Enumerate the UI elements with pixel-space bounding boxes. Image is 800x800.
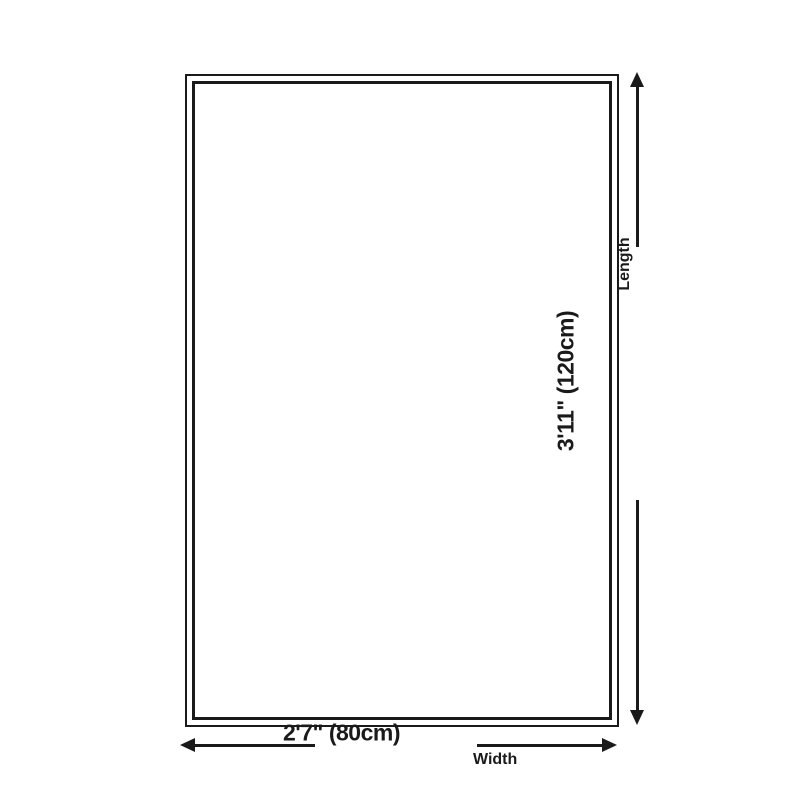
length-value: 3'11" (120cm) bbox=[552, 310, 579, 450]
length-arrow-down-icon bbox=[630, 710, 644, 725]
rug-outline-inner bbox=[192, 81, 612, 720]
length-label: Length bbox=[616, 237, 634, 290]
size-diagram: Length 3'11" (120cm) 2'7" (80cm) Width bbox=[0, 0, 800, 800]
width-arrow-left-icon bbox=[180, 738, 195, 752]
width-value: 2'7" (80cm) bbox=[283, 719, 400, 746]
width-label: Width bbox=[473, 751, 517, 769]
length-arrow-line-bottom bbox=[636, 500, 639, 711]
width-arrow-line-right bbox=[477, 744, 603, 747]
width-arrow-right-icon bbox=[602, 738, 617, 752]
length-arrow-line-top bbox=[636, 85, 639, 247]
